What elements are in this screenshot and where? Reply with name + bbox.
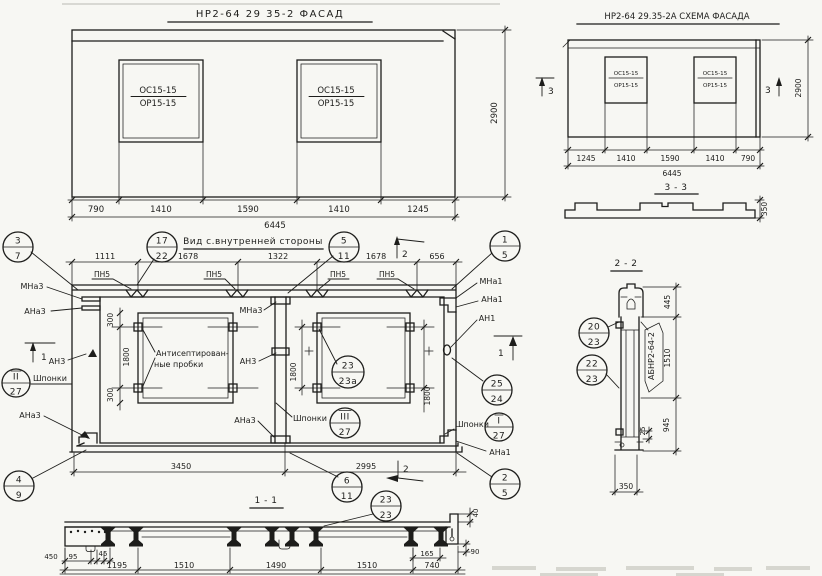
facade-title: НР2-64 29 35-2 ФАСАД — [196, 9, 344, 20]
dim-2995: 2995 — [356, 462, 376, 471]
callout-circle-22-23: 22 23 — [577, 355, 607, 385]
window-mark-top: ОС15-15 — [703, 71, 728, 77]
facade-window-right: ОС15-15 ОР15-15 — [297, 60, 381, 142]
window-mark-bottom: ОР15-15 — [318, 99, 355, 109]
svg-text:3: 3 — [548, 87, 554, 97]
dim-1322: 1322 — [268, 252, 288, 261]
dim-1410: 1410 — [705, 154, 724, 163]
scan-artifacts — [492, 566, 810, 576]
dim-1678: 1678 — [366, 252, 386, 261]
callout-circle-4-9: 4 9 — [4, 471, 34, 501]
dim-945: 945 — [662, 418, 671, 433]
dim-1800: 1800 — [289, 362, 298, 381]
callout-circle-2-5: 2 5 — [490, 469, 520, 499]
window-mark-top: ОС15-15 — [317, 86, 354, 96]
svg-text:23: 23 — [586, 375, 598, 385]
svg-text:9: 9 — [16, 491, 22, 501]
dim-1410: 1410 — [328, 205, 350, 215]
svg-text:23: 23 — [342, 362, 354, 372]
dim-445: 445 — [663, 295, 672, 310]
lifting-loop-recesses — [126, 290, 428, 297]
panel-mark: АБНР2-64-2 — [647, 332, 656, 380]
dim-656: 656 — [429, 252, 444, 261]
label-ana1: АНа1 — [481, 295, 502, 304]
shponki-right: Шпонки — [445, 420, 489, 434]
left-margin-details — [79, 297, 100, 443]
note-line-2: ные пробки — [154, 360, 203, 369]
svg-text:5: 5 — [341, 237, 347, 247]
section-2-2-title: 2 - 2 — [615, 259, 638, 269]
corbel-top-right — [440, 298, 456, 312]
svg-text:6: 6 — [344, 477, 350, 487]
label-mna1: МНа1 — [480, 277, 503, 286]
inner-bottom-ext — [74, 443, 456, 476]
dim-1111: 1111 — [95, 252, 115, 261]
note-line-1: Антисептирован- — [156, 349, 229, 358]
label-shponki: Шпонки — [293, 414, 327, 423]
facade-height-ext — [457, 26, 511, 201]
shponki-left: Шпонки — [31, 374, 72, 384]
section-2-2: 2 - 2 АБНР2-64-2 445 1510 945 — [577, 259, 681, 495]
dim-height: 2900 — [490, 102, 500, 124]
right-lip — [446, 514, 458, 544]
label-mna3: МНа3 — [240, 306, 263, 315]
schema-view: НР2-64 29.35-2А СХЕМА ФАСАДА ОС15-15 ОР1… — [536, 12, 813, 178]
svg-text:2: 2 — [502, 474, 508, 484]
section-3-3: 3 - 3 350 — [565, 183, 769, 222]
facade-view: НР2-64 29 35-2 ФАСАД ОС15-15 ОР15-15 ОС1… — [68, 9, 511, 231]
dim-1678: 1678 — [178, 252, 198, 261]
dim-height: 2900 — [794, 78, 803, 97]
svg-text:1: 1 — [498, 349, 504, 359]
dim-1410: 1410 — [150, 205, 172, 215]
panel-mark-callout: АБНР2-64-2 — [641, 322, 663, 392]
svg-text:3: 3 — [15, 237, 21, 247]
dim-450: 450 — [44, 553, 57, 561]
dim-1510: 1510 — [174, 561, 194, 570]
svg-text:17: 17 — [156, 237, 168, 247]
window-mark-bottom: ОР15-15 — [703, 83, 727, 89]
svg-text:5: 5 — [502, 489, 508, 499]
inner-view: Вид с.внутренней стороны 1111 1678 1322 … — [19, 236, 522, 482]
section-marker-2-bottom: 2 — [386, 461, 423, 482]
drawing-canvas: НР2-64 29 35-2 ФАСАД ОС15-15 ОР15-15 ОС1… — [0, 0, 822, 576]
plug — [616, 429, 623, 435]
dim-90: 90 — [471, 548, 480, 556]
svg-text:27: 27 — [339, 428, 351, 438]
pn5-label: ПН5 — [379, 270, 395, 279]
callout-circles: 3 7 17 22 5 11 1 5 II 27 III 27 — [2, 231, 520, 526]
left-labels: МНа3 АНа3 АН3 АНа3 — [19, 282, 90, 439]
dim-total: 6445 — [264, 221, 286, 231]
right-lip-hook — [450, 537, 454, 541]
svg-text:25: 25 — [491, 380, 503, 390]
slab-lines — [110, 531, 440, 537]
svg-text:23: 23 — [588, 338, 600, 348]
callout-circle-23-23: 23 23 — [371, 491, 401, 521]
section-1-1-title: 1 - 1 — [255, 496, 278, 506]
middle-divider — [271, 297, 290, 443]
section-3-3-title: 3 - 3 — [665, 183, 688, 193]
svg-text:II: II — [13, 373, 19, 383]
callout-circle-3-7: 3 7 — [3, 232, 33, 262]
inner-top-ext — [72, 262, 456, 290]
svg-text:20: 20 — [588, 323, 600, 333]
section-marker-1-right: 1 — [494, 336, 522, 360]
blueprint-sheet: НР2-64 29 35-2 ФАСАД ОС15-15 ОР15-15 ОС1… — [0, 0, 822, 576]
dim-350: 350 — [760, 202, 769, 217]
dim-1800: 1800 — [122, 347, 131, 366]
svg-text:3: 3 — [765, 86, 771, 96]
weld-tick — [88, 349, 97, 357]
window-mark-top: ОС15-15 — [139, 86, 176, 96]
section-2-2-width-dim: 350 — [610, 455, 643, 495]
svg-text:22: 22 — [586, 360, 598, 370]
left-end-block — [65, 527, 110, 552]
section-2-2-leaders — [606, 322, 619, 388]
inner-window-right — [295, 313, 434, 403]
dim-300: 300 — [106, 313, 115, 328]
svg-text:7: 7 — [15, 252, 21, 262]
dim-1590: 1590 — [660, 154, 679, 163]
dim-790: 790 — [88, 205, 104, 215]
svg-text:27: 27 — [493, 432, 505, 442]
svg-text:4: 4 — [16, 476, 22, 486]
schema-window-right: ОС15-15 ОР15-15 — [694, 57, 736, 103]
dim-45: 45 — [99, 550, 108, 558]
schema-panel — [568, 40, 760, 137]
callout-circle-23-23a: 23 23а — [332, 356, 364, 388]
window-mark-bottom: ОР15-15 — [140, 99, 177, 109]
svg-text:11: 11 — [341, 492, 353, 502]
dim-165: 165 — [420, 550, 433, 558]
pn5-label: ПН5 — [206, 270, 222, 279]
dim-1245: 1245 — [576, 154, 595, 163]
window-left-dim-chain: 300 1800 300 — [106, 308, 131, 410]
callout-circle-20-23: 20 23 — [579, 318, 609, 348]
svg-text:23: 23 — [380, 511, 392, 521]
window-mark-bottom: ОР15-15 — [614, 83, 638, 89]
svg-text:24: 24 — [491, 395, 503, 405]
dim-790: 790 — [741, 154, 756, 163]
label-shponki: Шпонки — [33, 374, 67, 383]
label-ana3: АНа3 — [24, 307, 45, 316]
hook-detail — [619, 284, 643, 317]
dim-1510: 1510 — [357, 561, 377, 570]
dim-350: 350 — [619, 482, 634, 491]
small-dims-right: 165 90 40 — [410, 508, 480, 561]
dim-1590: 1590 — [237, 205, 259, 215]
right-margin-details — [440, 298, 456, 443]
svg-text:1: 1 — [502, 236, 508, 246]
facade-panel — [72, 30, 455, 197]
inner-title: Вид с.внутренней стороны — [183, 237, 323, 247]
dim-1490: 1490 — [266, 561, 286, 570]
section-1-1: 1 - 1 — [44, 496, 480, 574]
section-marker-2-top: 2 — [394, 236, 424, 260]
label-ana1: АНа1 — [489, 448, 510, 457]
dim-total: 6445 — [662, 169, 681, 178]
label-an3: АН3 — [240, 357, 257, 366]
dim-95: 95 — [69, 553, 78, 561]
dim-25: 25 — [639, 427, 647, 436]
svg-text:23а: 23а — [339, 377, 357, 387]
svg-text:1: 1 — [41, 353, 47, 363]
callout-circle-1-5: 1 5 — [490, 231, 520, 261]
callout-circle-5-11: 5 11 — [329, 232, 359, 262]
middle-labels: МНа3 АН3 АНа3 — [234, 302, 276, 437]
inner-window-left — [112, 313, 258, 403]
section-3-3-profile — [565, 203, 755, 218]
dim-1510: 1510 — [663, 348, 672, 367]
callout-circle-17-22: 17 22 — [147, 232, 177, 262]
right-labels: МНа1 АНа1 АН1 АНа1 — [451, 277, 511, 457]
pn5-label: ПН5 — [330, 270, 346, 279]
svg-text:22: 22 — [156, 252, 168, 262]
window-mark-top: ОС15-15 — [614, 71, 639, 77]
dim-3450: 3450 — [171, 462, 191, 471]
shponki-mid: Шпонки — [276, 403, 327, 423]
bottom-sill — [70, 443, 462, 452]
svg-text:2: 2 — [403, 465, 409, 475]
dim-1800: 1800 — [423, 386, 432, 405]
svg-text:5: 5 — [502, 251, 508, 261]
schema-title: НР2-64 29.35-2А СХЕМА ФАСАДА — [604, 12, 749, 22]
callout-circle-I-27: I 27 — [485, 413, 513, 442]
facade-window-left: ОС15-15 ОР15-15 — [119, 60, 203, 142]
label-ana3: АНа3 — [19, 411, 40, 420]
small-dims-left: 450 95 45 — [44, 548, 113, 564]
flange-lines — [65, 522, 450, 527]
dim-1245: 1245 — [407, 205, 429, 215]
facade-corner-notch — [443, 31, 455, 39]
svg-text:III: III — [340, 413, 349, 423]
label-mna3: МНа3 — [21, 282, 44, 291]
facade-extension-lines — [72, 142, 455, 221]
svg-text:11: 11 — [338, 252, 350, 262]
schema-persp-line — [563, 40, 570, 47]
dim-740: 740 — [424, 561, 439, 570]
section-marker-3-right: 3 — [765, 77, 782, 96]
pn5-label: ПН5 — [94, 270, 110, 279]
callout-circle-6-11: 6 11 — [332, 472, 362, 502]
svg-text:23: 23 — [380, 496, 392, 506]
svg-text:2: 2 — [402, 250, 408, 260]
callout-circle-25-24: 25 24 — [482, 375, 512, 405]
dim-1410: 1410 — [616, 154, 635, 163]
dim-40: 40 — [472, 509, 480, 518]
svg-text:27: 27 — [10, 388, 22, 398]
callout-circle-III-27: III 27 — [330, 408, 360, 438]
dim-300: 300 — [106, 388, 115, 403]
dim-1195: 1195 — [107, 561, 127, 570]
label-an3: АН3 — [49, 357, 66, 366]
section-marker-3-left: 3 — [536, 77, 554, 97]
label-shponki: Шпонки — [455, 420, 489, 429]
label-an1: АН1 — [479, 314, 496, 323]
antiseptic-note: Антисептирован- ные пробки — [143, 330, 229, 386]
label-ana3: АНа3 — [234, 416, 255, 425]
schema-window-left: ОС15-15 ОР15-15 — [605, 57, 647, 103]
callout-circle-II-27: II 27 — [2, 369, 30, 398]
svg-text:I: I — [497, 417, 500, 427]
